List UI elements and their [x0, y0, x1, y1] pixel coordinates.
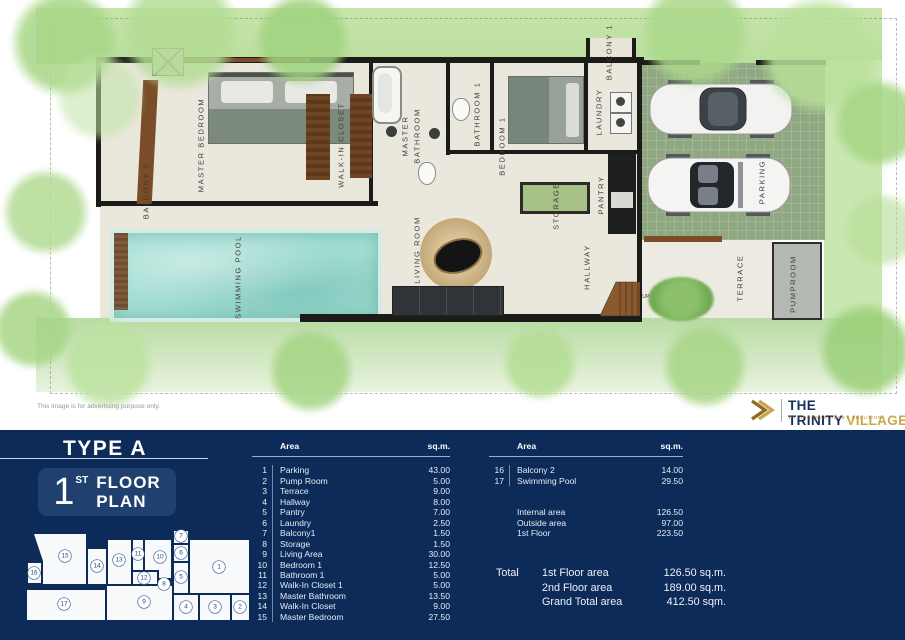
room-label-pumproom: PUMPROOM: [789, 255, 798, 313]
table-row: 9Living Area30.00: [252, 549, 450, 559]
floor-number: 1: [53, 475, 74, 509]
table-row: 10Bedroom 112.50: [252, 560, 450, 570]
table-row: 4Hallway8.00: [252, 497, 450, 507]
room-label-bathroom-1: BATHROOM 1: [473, 81, 482, 146]
summary-sqm: 97.00: [631, 518, 683, 528]
row-sqm: 1.50: [398, 528, 450, 538]
row-number: 5: [252, 507, 273, 517]
summary-row: Internal area126.50: [489, 507, 683, 517]
summary-name: Outside area: [517, 518, 631, 528]
site-plan: BALCONY 2MASTER BEDROOMWALK-IN CLOSETMAS…: [0, 0, 905, 430]
room-label-storage: STORAGE: [552, 182, 561, 230]
table-row: 7Balcony11.50: [252, 528, 450, 538]
bathtub: [372, 66, 402, 124]
svg-text:4: 4: [184, 604, 188, 611]
tree: [62, 318, 154, 410]
tree: [268, 328, 354, 414]
area-summary: Internal area126.50Outside area97.001st …: [489, 507, 683, 538]
row-sqm: 14.00: [631, 465, 683, 475]
wall-balcony1-w: [586, 38, 590, 60]
row-number: 8: [252, 539, 273, 549]
pillow: [566, 83, 579, 137]
tree: [662, 323, 748, 409]
row-name: Storage: [280, 539, 398, 549]
row-name: Pump Room: [280, 476, 398, 486]
svg-text:17: 17: [60, 601, 68, 608]
row-number: 1: [252, 465, 273, 475]
table-header: Area sq.m.: [489, 441, 683, 457]
row-sqm: 5.00: [398, 580, 450, 590]
total-value: 189.00 sq.m.: [664, 581, 726, 596]
table-row: 15Master Bedroom27.50: [252, 612, 450, 622]
table-row: 8Storage1.50: [252, 539, 450, 549]
row-sqm: 27.50: [398, 612, 450, 622]
tree: [818, 302, 905, 398]
area-table-left: Area sq.m. 1Parking43.002Pump Room5.003T…: [252, 441, 450, 622]
table-rows: 16Balcony 214.0017Swimming Pool29.50: [489, 465, 683, 486]
room-label-walk-in-closet: WALK-IN CLOSET: [337, 102, 346, 187]
row-sqm: 29.50: [631, 476, 683, 486]
brand-name-main: THE TRINITY: [788, 398, 843, 428]
row-number: 13: [252, 591, 273, 601]
svg-text:13: 13: [115, 557, 123, 564]
wall-inner-4: [584, 60, 588, 152]
floor-word-1: FLOOR: [96, 473, 161, 492]
key-plan: 12 34 56 78 910 1112 1314 1516 17: [20, 527, 250, 623]
summary-sqm: 223.50: [631, 528, 683, 538]
table-row: 2Pump Room5.00: [252, 476, 450, 486]
chair-cushion: [429, 232, 487, 280]
row-number: 17: [489, 476, 510, 486]
gate-south-parking: [644, 236, 722, 242]
svg-text:6: 6: [179, 550, 183, 557]
room-label-up: UP: [642, 294, 650, 300]
header-area: Area: [280, 441, 398, 451]
brand-logo-icon: [748, 396, 776, 424]
summary-name: Internal area: [517, 507, 631, 517]
row-number: 11: [252, 570, 273, 580]
tree: [2, 168, 90, 256]
floor-plan-words: FLOOR PLAN: [96, 473, 161, 511]
total-name: 1st Floor area: [542, 566, 664, 581]
master-bed: [208, 72, 354, 144]
row-name: Living Area: [280, 549, 398, 559]
room-label-pantry: PANTRY: [597, 175, 606, 214]
row-sqm: 5.00: [398, 476, 450, 486]
header-sqm: sq.m.: [631, 441, 683, 451]
row-number: 4: [252, 497, 273, 507]
disclaimer-text: This image is for advertising purpose on…: [37, 403, 160, 410]
row-sqm: 9.00: [398, 486, 450, 496]
car-2: [646, 150, 792, 220]
toilet: [452, 98, 470, 121]
total-row: Grand Total area412.50 sqm.: [496, 595, 726, 610]
totals-block: Total1st Floor area126.50 sq.m.2nd Floor…: [496, 566, 726, 610]
table-row: 1Parking43.00: [252, 465, 450, 475]
tree: [502, 325, 578, 401]
table-row: 17Swimming Pool29.50: [489, 476, 683, 486]
total-row: Total1st Floor area126.50 sq.m.: [496, 566, 726, 581]
sink: [384, 124, 399, 139]
row-number: 2: [252, 476, 273, 486]
kitchen-sink: [611, 192, 633, 208]
summary-row: 1st Floor223.50: [489, 528, 683, 538]
table-row: 16Balcony 214.00: [489, 465, 683, 475]
row-name: Laundry: [280, 518, 398, 528]
row-name: Balcony1: [280, 528, 398, 538]
row-name: Pantry: [280, 507, 398, 517]
swimming-pool-water: [110, 229, 382, 322]
total-value: 412.50 sqm.: [667, 595, 726, 610]
room-label-laundry: LAUNDRY: [595, 89, 604, 136]
brand-divider: [781, 399, 782, 422]
title-underline: [0, 458, 208, 459]
row-sqm: 13.50: [398, 591, 450, 601]
round-chair: [420, 218, 492, 290]
row-sqm: 12.50: [398, 560, 450, 570]
svg-text:14: 14: [93, 563, 101, 570]
row-number: 16: [489, 465, 510, 475]
svg-text:12: 12: [140, 575, 148, 582]
floor-word-2: PLAN: [96, 492, 161, 511]
toilet: [418, 162, 436, 185]
room-label-balcony-2: BALCONY 2: [142, 163, 151, 219]
table-header: Area sq.m.: [252, 441, 450, 457]
row-name: Master Bedroom: [280, 612, 398, 622]
row-number: 12: [252, 580, 273, 590]
row-sqm: 8.00: [398, 497, 450, 507]
table-row: 5Pantry7.00: [252, 507, 450, 517]
row-name: Swimming Pool: [517, 476, 631, 486]
row-name: Walk-In Closet: [280, 601, 398, 611]
wall-inner-2: [446, 60, 450, 155]
area-table-right: Area sq.m. 16Balcony 214.0017Swimming Po…: [489, 441, 683, 539]
wardrobe-right: [350, 94, 372, 178]
brand-name: THE TRINITYVILLAGE: [788, 398, 905, 428]
room-label-terrace: TERRACE: [736, 254, 745, 301]
row-name: Terrace: [280, 486, 398, 496]
summary-sqm: 126.50: [631, 507, 683, 517]
header-sqm: sq.m.: [398, 441, 450, 451]
header-area: Area: [517, 441, 631, 451]
row-number: 3: [252, 486, 273, 496]
blanket: [509, 77, 549, 143]
row-name: Walk-In Closet 1: [280, 580, 398, 590]
row-number: 10: [252, 560, 273, 570]
total-name: 2nd Floor area: [542, 581, 664, 596]
pillow: [221, 81, 273, 103]
dryer: [610, 113, 632, 134]
tree: [55, 52, 145, 142]
table-rows: 1Parking43.002Pump Room5.003Terrace9.004…: [252, 465, 450, 622]
floor-plan-brochure: BALCONY 2MASTER BEDROOMWALK-IN CLOSETMAS…: [0, 0, 905, 640]
row-name: Bathroom 1: [280, 570, 398, 580]
row-name: Parking: [280, 465, 398, 475]
summary-row: Outside area97.00: [489, 518, 683, 528]
row-number: 6: [252, 518, 273, 528]
table-row: 6Laundry2.50: [252, 518, 450, 528]
shrub: [648, 277, 714, 321]
row-number: 9: [252, 549, 273, 559]
wall-inner-3: [490, 60, 494, 152]
room-label-master-bathroom-1: MASTER: [401, 116, 410, 157]
total-label: Total: [496, 566, 542, 581]
total-row: 2nd Floor area189.00 sq.m.: [496, 581, 726, 596]
row-name: Balcony 2: [517, 465, 631, 475]
row-name: Hallway: [280, 497, 398, 507]
row-sqm: 30.00: [398, 549, 450, 559]
floor-ordinal: ST: [75, 475, 88, 486]
pool-wood-deck: [114, 233, 128, 310]
laundry-machines: [610, 92, 632, 134]
row-number: 15: [252, 612, 273, 622]
row-sqm: 7.00: [398, 507, 450, 517]
room-label-parking: PARKING: [758, 160, 767, 204]
sink: [427, 126, 442, 141]
row-sqm: 43.00: [398, 465, 450, 475]
row-sqm: 1.50: [398, 539, 450, 549]
room-label-living-room: LIVING ROOM: [413, 216, 422, 284]
brand-tagline: BY ANDAMAN ASSET SOLUTION: [789, 415, 882, 420]
floor-plan-badge: 1 ST FLOOR PLAN: [38, 468, 176, 516]
svg-text:8: 8: [162, 581, 166, 588]
wardrobe-left: [306, 94, 330, 180]
room-label-bedroom-1: BEDROOM 1: [498, 116, 507, 175]
room-label-swimming-pool: SWIMMING POOL: [234, 235, 243, 319]
sofa: [392, 286, 504, 316]
room-label-master-bedroom: MASTER BEDROOM: [197, 98, 206, 193]
svg-text:10: 10: [156, 554, 164, 561]
row-number: 7: [252, 528, 273, 538]
table-row: 3Terrace9.00: [252, 486, 450, 496]
svg-text:5: 5: [179, 574, 183, 581]
washer: [610, 92, 632, 113]
svg-text:3: 3: [213, 604, 217, 611]
row-name: Bedroom 1: [280, 560, 398, 570]
staircase: [600, 280, 640, 318]
total-name: Grand Total area: [542, 595, 667, 610]
row-sqm: 2.50: [398, 518, 450, 528]
table-row: 14Walk-In Closet9.00: [252, 601, 450, 611]
svg-text:2: 2: [238, 604, 242, 611]
row-sqm: 5.00: [398, 570, 450, 580]
svg-text:7: 7: [179, 533, 183, 540]
row-name: Master Bathroom: [280, 591, 398, 601]
svg-text:11: 11: [135, 551, 142, 558]
kitchen-counter: [608, 154, 636, 234]
room-label-hallway: HALLWAY: [583, 244, 592, 290]
total-label: [496, 595, 542, 610]
table-row: 13Master Bathroom13.50: [252, 591, 450, 601]
row-number: 14: [252, 601, 273, 611]
summary-name: 1st Floor: [517, 528, 631, 538]
svg-text:9: 9: [142, 599, 146, 606]
blanket: [209, 109, 353, 143]
info-panel: TYPE A 1 ST FLOOR PLAN: [0, 430, 905, 640]
table-row: 12Walk-In Closet 15.00: [252, 580, 450, 590]
table-row: 11Bathroom 15.00: [252, 570, 450, 580]
wall-balcony1-e: [632, 38, 636, 60]
total-value: 126.50 sq.m.: [664, 566, 726, 581]
svg-text:15: 15: [61, 553, 69, 560]
total-label: [496, 581, 542, 596]
svg-text:1: 1: [217, 564, 221, 571]
room-label-master-bathroom-2: BATHROOM: [413, 108, 422, 164]
room-label-balcony-1: BALCONY 1: [605, 24, 614, 80]
row-sqm: 9.00: [398, 601, 450, 611]
svg-text:16: 16: [30, 570, 38, 577]
bedroom1-bed: [508, 76, 584, 144]
tub-basin: [378, 73, 392, 113]
